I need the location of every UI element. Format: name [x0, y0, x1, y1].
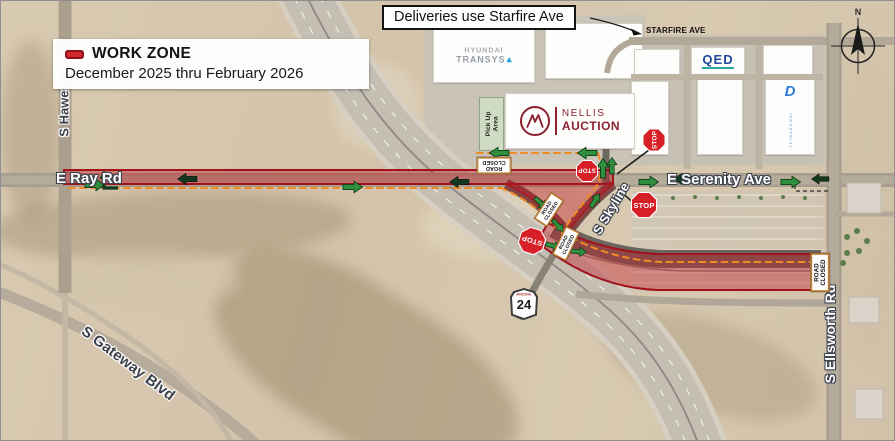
callout-arrowhead	[631, 29, 642, 36]
compass-north-label: N	[855, 7, 862, 17]
building	[849, 297, 879, 323]
callout-leader	[590, 18, 636, 32]
building	[855, 389, 883, 419]
road-label-serenity: E Serenity Ave	[667, 171, 771, 188]
work-zone-ray-rd	[64, 170, 613, 184]
road-closed-sign: ROADCLOSED	[811, 253, 829, 291]
work-zone-swatch-icon	[65, 50, 84, 59]
building	[847, 183, 881, 213]
map-canvas: HYUNDAI TRANSYS QED D INDUSTRIAL NELLIS …	[0, 0, 895, 441]
road-closed-sign: ROADCLOSED	[477, 157, 511, 173]
road-label-starfire: STARFIRE AVE	[646, 26, 706, 35]
stop-sign: STOP	[631, 192, 658, 219]
legend-title: WORK ZONE	[92, 45, 191, 63]
legend-box: WORK ZONE December 2025 thru February 20…	[53, 39, 369, 89]
stop-sign: STOP	[576, 160, 598, 182]
deliveries-callout: Deliveries use Starfire Ave	[382, 5, 576, 30]
stop-leader	[617, 150, 649, 174]
shield-state-label: ARIZONA	[516, 293, 531, 296]
road-label-ray: E Ray Rd	[56, 170, 122, 187]
stop-sign: STOP	[643, 129, 666, 152]
legend-dates: December 2025 thru February 2026	[65, 65, 357, 82]
shield-number: 24	[517, 298, 531, 311]
traffic-arrow	[578, 147, 598, 159]
route-24-shield: ARIZONA 24	[510, 288, 538, 320]
